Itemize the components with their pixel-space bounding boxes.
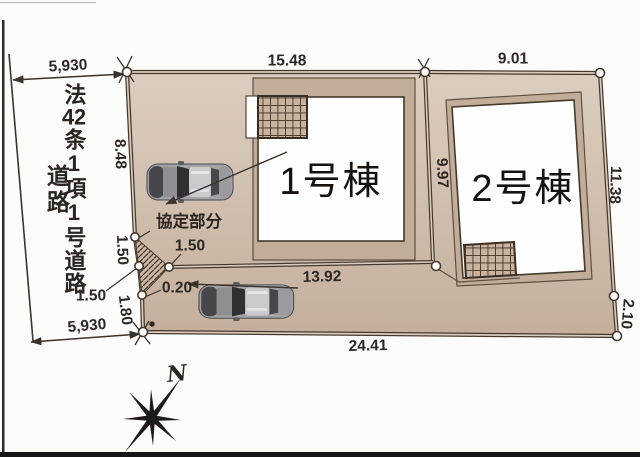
road-designation-char: 42 — [61, 106, 86, 128]
building-2-balcony-hatch — [464, 242, 516, 278]
road-label-text: 道路 — [44, 164, 68, 216]
dim-west-upper: 8.48 — [111, 139, 129, 170]
car-1 — [147, 161, 233, 203]
boundary-marker — [131, 233, 139, 241]
road-designation-char: 号 — [61, 226, 86, 249]
boundary-marker — [138, 291, 146, 299]
building-1-label: 1号棟 — [279, 161, 382, 203]
image-frame-top — [0, 2, 96, 3]
boundary-marker — [165, 263, 173, 271]
boundary-marker — [610, 292, 619, 301]
boundary-marker — [123, 68, 132, 77]
building-2-label: 2号棟 — [471, 168, 574, 210]
dim-east-lower: 2.10 — [617, 298, 637, 330]
dim-road-frontage-top: 5,930 — [48, 56, 88, 75]
agreement-area-label: 協定部分 — [156, 211, 223, 231]
dim-south-total: 24.41 — [348, 337, 388, 355]
boundary-marker — [432, 262, 441, 271]
image-frame-left — [2, 20, 5, 457]
boundary-marker — [421, 68, 430, 77]
boundary-marker — [613, 332, 622, 341]
site-plan-drawing: 5,930 15.48 9.01 8.48 9.97 11.38 2.10 13… — [0, 0, 640, 457]
dim-agreement-depth: 1.50 — [175, 238, 205, 255]
road-designation-char: 法 — [61, 83, 86, 106]
road-designation-char: 道 — [61, 249, 86, 272]
road-designation-char: 条 — [61, 128, 86, 151]
corner-dot — [149, 321, 154, 326]
site-plan: 5,930 15.48 9.01 8.48 9.97 11.38 2.10 13… — [0, 0, 640, 457]
dim-lot-divider: 9.97 — [433, 158, 451, 189]
building-1-balcony-hatch — [258, 96, 307, 138]
boundary-marker — [139, 328, 148, 337]
road-designation-char: 路 — [61, 272, 86, 295]
image-frame-bottom — [0, 452, 640, 457]
boundary-marker — [596, 69, 605, 78]
building-1-balcony-strip — [246, 96, 258, 138]
compass-north-label: N — [165, 360, 190, 388]
dim-road-frontage-bottom: 5,930 — [67, 316, 107, 336]
dim-lot1-north: 15.48 — [268, 53, 307, 70]
dim-east-upper: 11.38 — [606, 166, 624, 205]
dim-lot1-south: 13.92 — [302, 268, 341, 286]
boundary-marker — [135, 262, 143, 270]
dim-lot2-north: 9.01 — [498, 51, 529, 68]
dim-edge-offset: 0.20 — [162, 280, 192, 297]
dim-west-seg1: 1.50 — [113, 235, 131, 266]
